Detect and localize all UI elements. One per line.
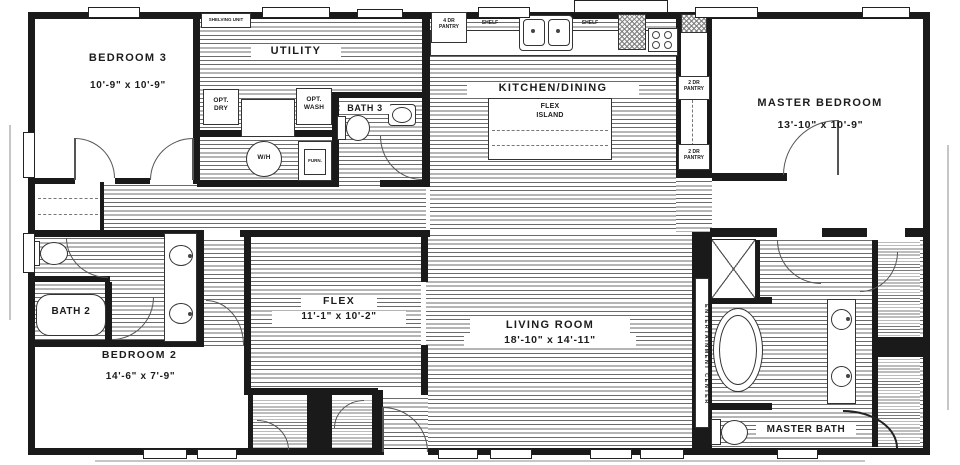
- door-leaf: [74, 138, 76, 180]
- label-opt-dry: OPT. DRY: [203, 97, 239, 113]
- faucet-dot: [188, 312, 192, 316]
- room-label-bedroom3: BEDROOM 3: [48, 52, 208, 66]
- wall: [105, 282, 112, 340]
- label-opt-wash: OPT. WASH: [296, 96, 332, 112]
- room-label-living-room: LIVING ROOM: [470, 319, 630, 333]
- window: [262, 7, 330, 18]
- wall: [193, 12, 200, 184]
- window: [590, 449, 632, 459]
- kitchen-bay-window: [574, 0, 668, 13]
- room-label-master-bedroom: MASTER BEDROOM: [725, 97, 915, 111]
- wall: [248, 393, 253, 448]
- room-label-flex: FLEX: [301, 295, 377, 308]
- pantry-hall-floor: [676, 178, 712, 232]
- room-dims-flex: 11'-1" x 10'-2": [272, 311, 406, 324]
- window: [777, 449, 818, 459]
- hallway-floor: [104, 182, 426, 230]
- label-shelving-unit: SHELVING UNIT: [201, 17, 251, 23]
- wall: [197, 180, 337, 187]
- faucet-dot: [556, 29, 560, 33]
- room-label-kitchen: KITCHEN/DINING: [467, 82, 639, 96]
- wall: [28, 178, 75, 184]
- faucet-dot: [846, 317, 850, 321]
- wall: [710, 228, 777, 237]
- refrigerator: [618, 14, 646, 50]
- room-label-utility: UTILITY: [251, 45, 341, 59]
- window: [438, 449, 478, 459]
- wall: [115, 178, 150, 184]
- sink-basin: [392, 107, 412, 123]
- wall: [822, 228, 867, 237]
- garden-tub-inner: [719, 315, 757, 385]
- eave-line: [947, 145, 949, 410]
- label-shelf-right: SHELF: [576, 20, 604, 26]
- door-leaf: [192, 138, 194, 180]
- wall: [421, 237, 428, 282]
- window: [143, 449, 187, 459]
- shower: [711, 239, 756, 299]
- island-overhang-line: [492, 130, 608, 131]
- faucet-dot: [846, 374, 850, 378]
- room-label-bath3: BATH 3: [340, 103, 390, 114]
- burner: [664, 41, 672, 49]
- wall: [197, 230, 204, 347]
- washer-alcove: [241, 99, 295, 137]
- wall: [872, 337, 923, 357]
- wall: [923, 12, 930, 455]
- label-flex-island: FLEX ISLAND: [508, 103, 592, 121]
- wall: [100, 182, 104, 230]
- room-label-master-bath: MASTER BATH: [756, 424, 856, 437]
- door-arc: [150, 138, 193, 180]
- room-dims-bedroom2: 14'-6" x 7'-9": [78, 371, 203, 384]
- burner: [664, 31, 672, 39]
- window: [23, 233, 35, 273]
- wall: [421, 345, 428, 395]
- room-label-bedroom2: BEDROOM 2: [82, 349, 197, 362]
- toilet-tank: [711, 419, 721, 445]
- floor-plan: ENTERTAINMENT CENTER BEDROOM 3 10'-9" x …: [0, 0, 960, 465]
- closet-shelf-line: [38, 214, 98, 215]
- wall: [706, 403, 772, 410]
- pantry-shelf-line: [692, 100, 693, 146]
- wall: [244, 237, 251, 395]
- wall: [380, 180, 422, 187]
- faucet-dot: [188, 254, 192, 258]
- wall: [240, 230, 430, 237]
- wall: [422, 12, 430, 187]
- window: [23, 132, 35, 178]
- toilet-tank: [337, 116, 346, 140]
- entertainment-center-label: ENTERTAINMENT CENTER: [696, 281, 708, 427]
- burner: [652, 31, 660, 39]
- window: [640, 449, 684, 459]
- window: [490, 449, 532, 459]
- toilet: [721, 420, 748, 445]
- label-shelf-left: SHELF: [476, 20, 504, 26]
- eave-line: [95, 460, 865, 462]
- room-dims-bedroom3: 10'-9" x 10'-9": [48, 80, 208, 93]
- room-label-bath2: BATH 2: [42, 306, 100, 319]
- label-pantry-2dr-upper: 2 DR PANTRY: [679, 80, 709, 93]
- bedroom3-closet: [35, 184, 101, 228]
- window: [695, 7, 758, 18]
- closet-shelf-line: [38, 198, 98, 199]
- wall: [712, 173, 787, 181]
- burner: [652, 41, 660, 49]
- toilet: [346, 115, 370, 141]
- label-pantry-2dr-lower: 2 DR PANTRY: [679, 149, 709, 162]
- room-dims-living-room: 18'-10" x 14'-11": [464, 334, 636, 347]
- window: [862, 7, 910, 18]
- label-pantry-4dr: 4 DR PANTRY: [432, 18, 466, 31]
- island-overhang-line: [492, 145, 608, 146]
- door-arc: [75, 138, 115, 178]
- faucet-dot: [531, 29, 535, 33]
- eave-line: [9, 125, 11, 320]
- wall: [905, 228, 923, 237]
- label-furnace: FURN.: [304, 158, 326, 164]
- label-water-heater: W/H: [246, 154, 282, 162]
- wall: [307, 393, 332, 448]
- window: [357, 9, 403, 18]
- room-dims-master-bedroom: 13'-10" x 10'-9": [738, 119, 903, 132]
- wall: [332, 92, 425, 98]
- front-door-leaf: [382, 407, 384, 452]
- window: [197, 449, 237, 459]
- window: [88, 7, 140, 18]
- toilet: [40, 242, 68, 265]
- window: [478, 7, 530, 18]
